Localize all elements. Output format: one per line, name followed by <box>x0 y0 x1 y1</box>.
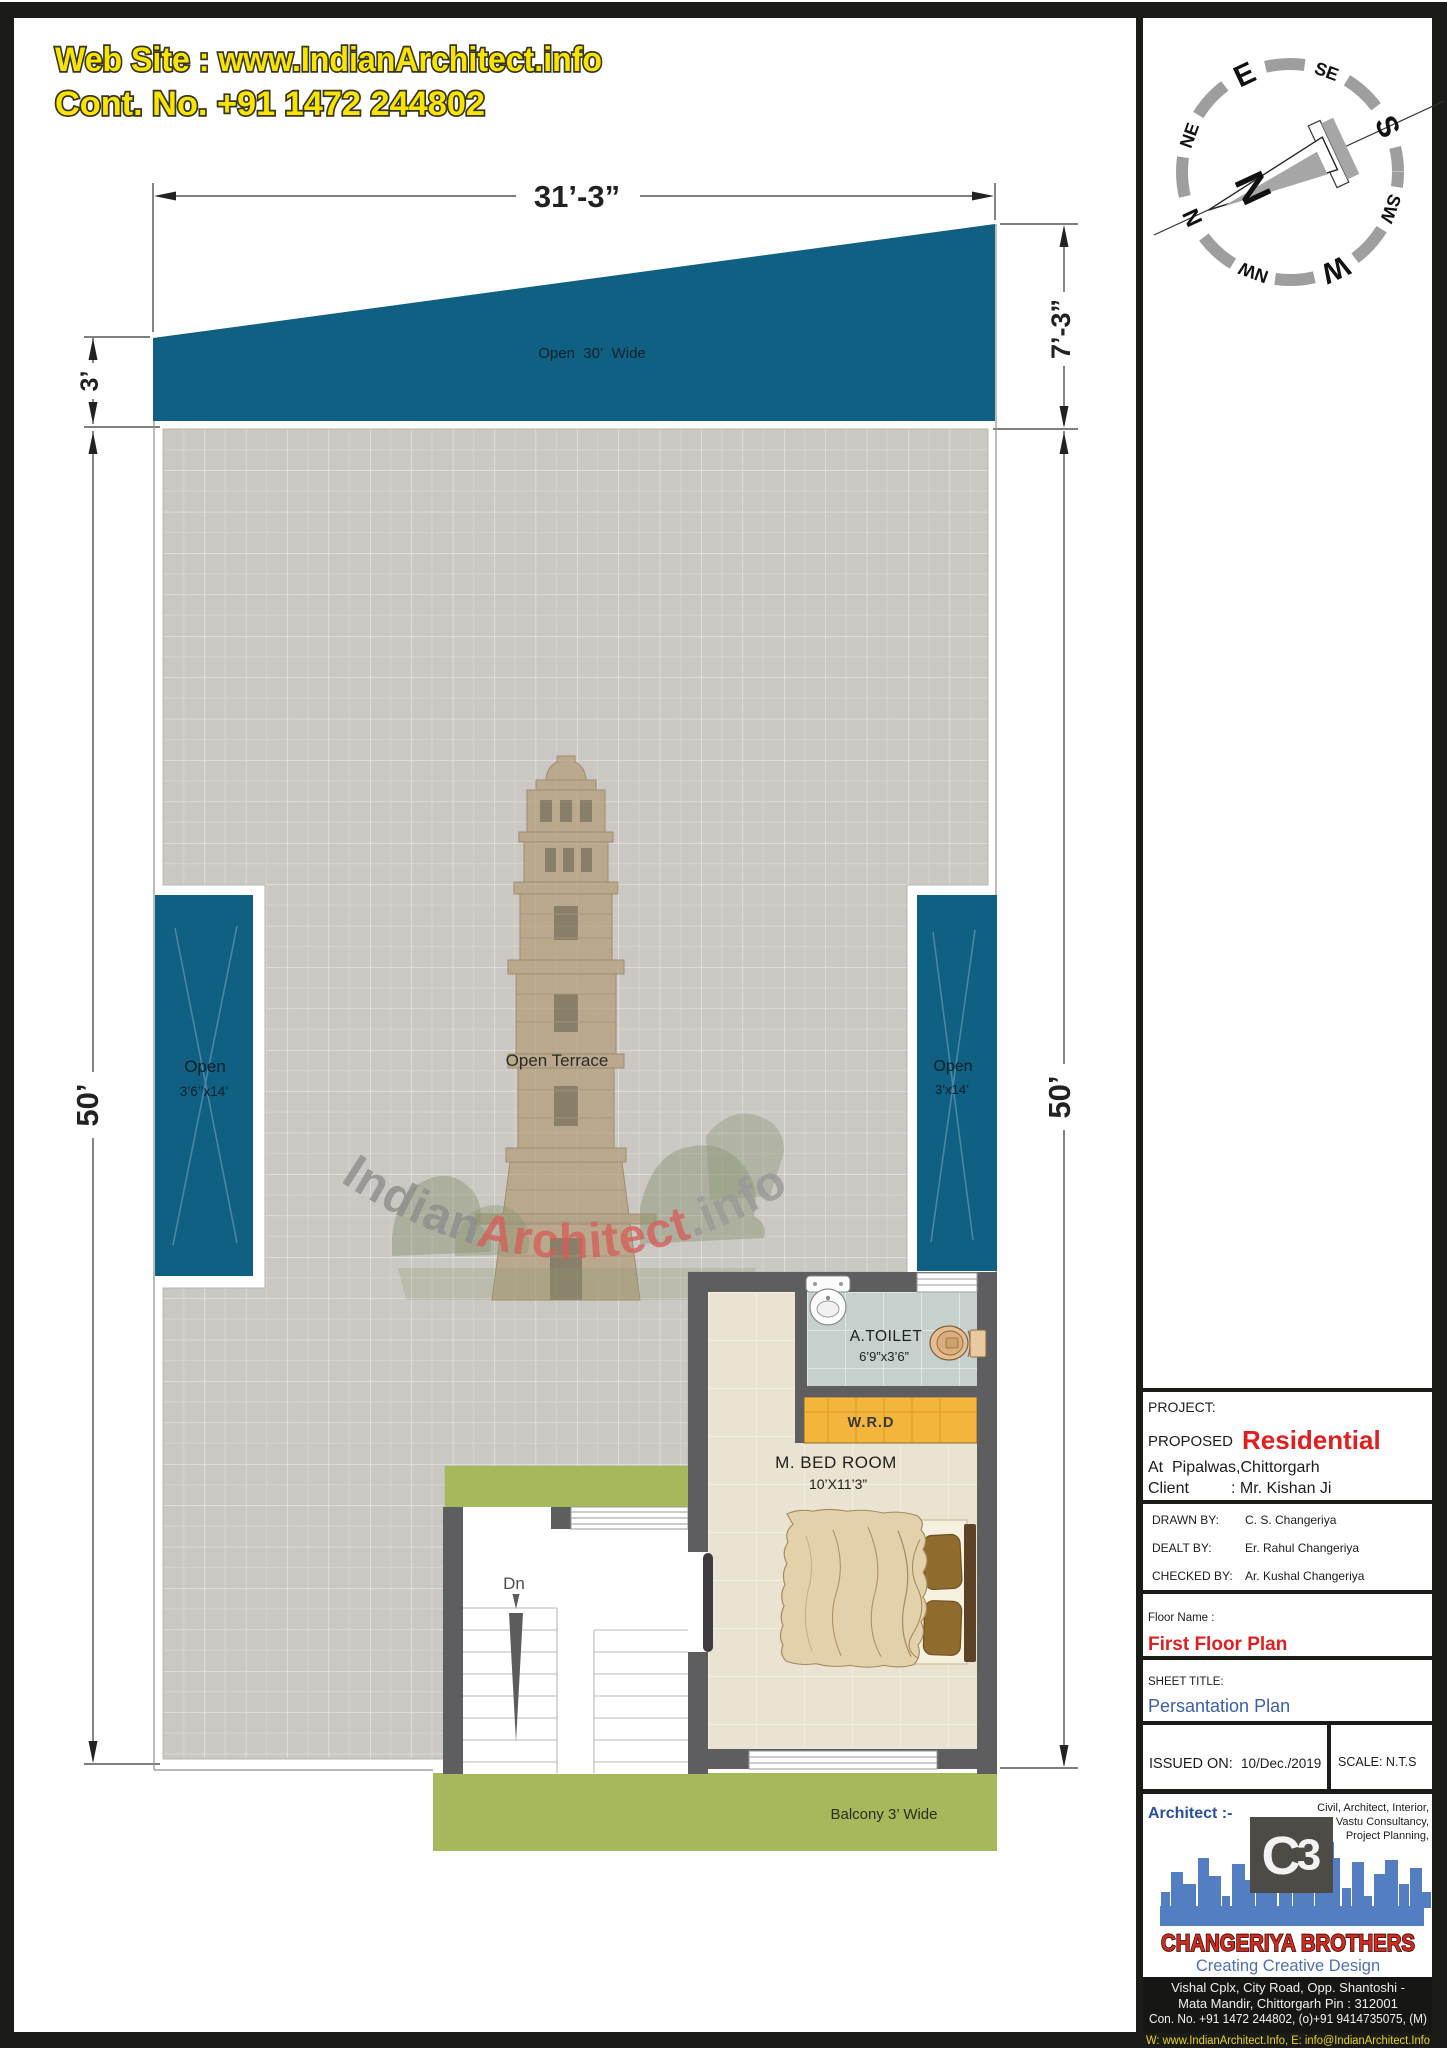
svg-text:CHECKED BY:: CHECKED BY: <box>1152 1569 1233 1583</box>
svg-text:Dn: Dn <box>503 1574 525 1593</box>
svg-text:SCALE: N.T.S: SCALE: N.T.S <box>1338 1755 1417 1769</box>
svg-text:Civil, Architect, Interior,: Civil, Architect, Interior, <box>1317 1802 1429 1814</box>
svg-text:Vishal Cplx, City Road, Opp. S: Vishal Cplx, City Road, Opp. Shantoshi - <box>1171 1980 1405 1995</box>
svg-text:: Mr. Kishan Ji: : Mr. Kishan Ji <box>1231 1480 1331 1497</box>
svg-text:Web Site : www.IndianArchitect: Web Site : www.IndianArchitect.info <box>55 41 602 79</box>
svg-text:Mata Mandir, Chittorgarh Pin :: Mata Mandir, Chittorgarh Pin : 312001 <box>1178 1996 1398 2011</box>
svg-text:Con. No. +91 1472 244802, (o)+: Con. No. +91 1472 244802, (o)+91 9414735… <box>1149 2012 1427 2026</box>
svg-text:50’: 50’ <box>70 1083 105 1126</box>
svg-text:Floor Name :: Floor Name : <box>1148 1612 1214 1624</box>
svg-text:PROJECT:: PROJECT: <box>1148 1399 1216 1415</box>
svg-text:DRAWN BY:: DRAWN BY: <box>1152 1513 1219 1527</box>
svg-text:7’-3”: 7’-3” <box>1046 299 1076 359</box>
svg-text:Persantation Plan: Persantation Plan <box>1148 1696 1290 1716</box>
svg-text:C. S. Changeriya: C. S. Changeriya <box>1245 1513 1337 1527</box>
svg-text:PROPOSED: PROPOSED <box>1148 1433 1233 1450</box>
svg-text:ISSUED ON:: ISSUED ON: <box>1149 1756 1233 1772</box>
svg-text:A.TOILET: A.TOILET <box>850 1328 923 1345</box>
svg-text:Open: Open <box>933 1058 972 1075</box>
svg-text:Architect :-: Architect :- <box>1148 1805 1232 1822</box>
svg-text:SHEET TITLE:: SHEET TITLE: <box>1148 1676 1224 1688</box>
svg-text:At Pipalwas,Chittorgarh: At Pipalwas,Chittorgarh <box>1148 1459 1320 1476</box>
svg-text:Residential: Residential <box>1242 1425 1381 1455</box>
svg-text:Cont. No. +91 1472 244802: Cont. No. +91 1472 244802 <box>55 85 485 123</box>
svg-text:Open Terrace: Open Terrace <box>506 1051 609 1070</box>
svg-text:3: 3 <box>1297 1831 1321 1880</box>
svg-text:Open 30’ Wide: Open 30’ Wide <box>538 345 646 362</box>
svg-text:10/Dec./2019: 10/Dec./2019 <box>1241 1756 1321 1771</box>
svg-text:Open: Open <box>184 1057 226 1076</box>
svg-text:31’-3”: 31’-3” <box>534 179 620 214</box>
svg-text:Client: Client <box>1148 1480 1189 1497</box>
svg-text:3’x14’: 3’x14’ <box>935 1082 969 1097</box>
svg-text:Ar. Kushal Changeriya: Ar. Kushal Changeriya <box>1245 1569 1365 1583</box>
svg-text:3’: 3’ <box>76 371 104 392</box>
svg-text:W.R.D: W.R.D <box>848 1415 895 1431</box>
svg-text:Vastu Consultancy,: Vastu Consultancy, <box>1336 1816 1429 1828</box>
svg-text:C: C <box>1262 1826 1301 1886</box>
svg-text:3’6’’x14’: 3’6’’x14’ <box>180 1084 229 1099</box>
svg-text:Er. Rahul Changeriya: Er. Rahul Changeriya <box>1245 1541 1359 1555</box>
svg-text:Project Planning,: Project Planning, <box>1346 1830 1429 1842</box>
svg-text:DEALT BY:: DEALT BY: <box>1152 1541 1212 1555</box>
svg-text:Creating Creative Design: Creating Creative Design <box>1196 1957 1380 1975</box>
svg-text:W: www.IndianArchitect.Info, E: W: www.IndianArchitect.Info, E: info@Ind… <box>1146 2035 1430 2047</box>
svg-text:CHANGERIYA BROTHERS: CHANGERIYA BROTHERS <box>1161 1930 1415 1957</box>
svg-text:Balcony 3’ Wide: Balcony 3’ Wide <box>831 1806 938 1823</box>
svg-text:10’X11’3”: 10’X11’3” <box>809 1476 867 1492</box>
svg-text:6’9”x3’6”: 6’9”x3’6” <box>859 1349 909 1364</box>
svg-text:First Floor Plan: First Floor Plan <box>1148 1634 1287 1655</box>
svg-text:50’: 50’ <box>1042 1075 1077 1118</box>
svg-text:M. BED ROOM: M. BED ROOM <box>775 1453 897 1472</box>
